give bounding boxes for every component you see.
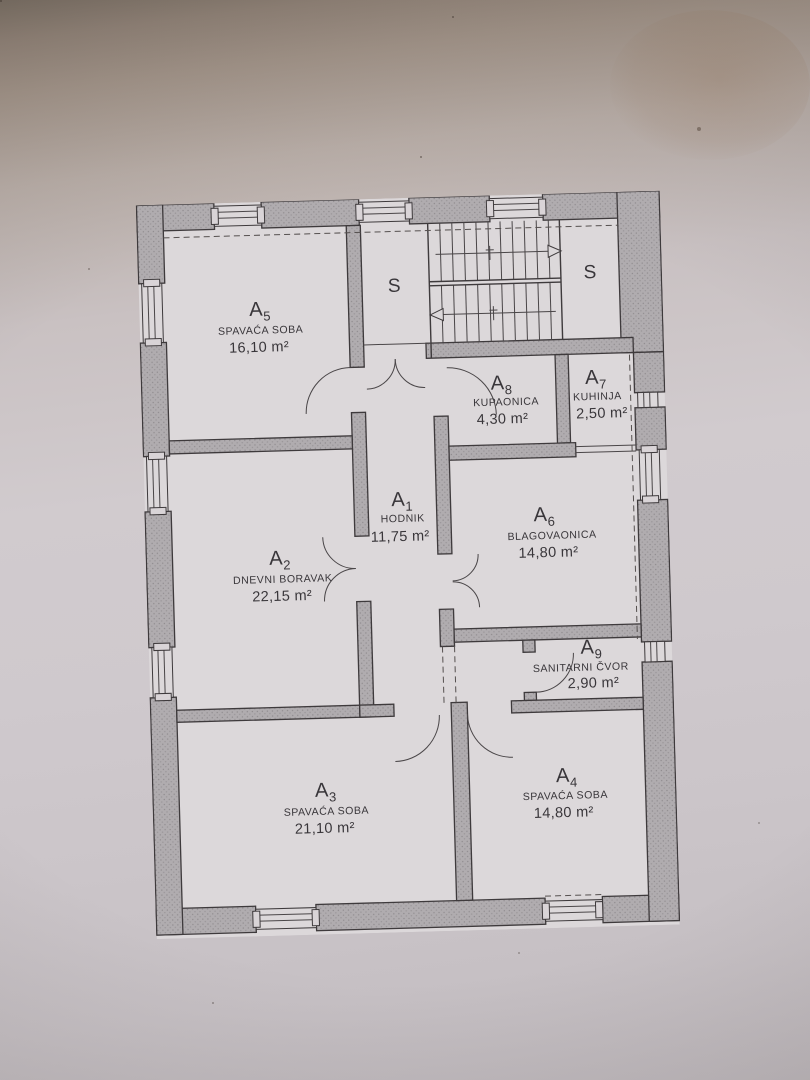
window — [356, 201, 413, 223]
svg-text:22,15 m²: 22,15 m² — [252, 588, 312, 606]
svg-text:11,75 m²: 11,75 m² — [371, 528, 430, 546]
window — [152, 643, 174, 701]
svg-text:SANITARNI ČVOR: SANITARNI ČVOR — [533, 659, 629, 675]
svg-text:SPAVAĆA SOBA: SPAVAĆA SOBA — [218, 323, 304, 338]
svg-text:14,80 m²: 14,80 m² — [518, 544, 578, 562]
paper-stain — [610, 10, 810, 160]
svg-text:KUPAONICA: KUPAONICA — [473, 395, 540, 409]
svg-text:SPAVAĆA SOBA: SPAVAĆA SOBA — [284, 804, 370, 819]
svg-text:2,90 m²: 2,90 m² — [567, 675, 619, 692]
svg-text:21,10 m²: 21,10 m² — [295, 820, 355, 838]
window — [486, 197, 546, 219]
window — [253, 907, 320, 929]
window — [639, 445, 661, 503]
window — [142, 279, 164, 346]
paper-specks — [0, 0, 2, 2]
window — [638, 392, 659, 408]
svg-text:2,50 m²: 2,50 m² — [576, 405, 628, 422]
svg-text:SPAVAĆA SOBA: SPAVAĆA SOBA — [523, 788, 609, 803]
closet-label-right: S — [583, 262, 596, 283]
window — [211, 205, 265, 227]
closet-label-left: S — [388, 276, 401, 297]
svg-text:14,80 m²: 14,80 m² — [534, 804, 594, 822]
svg-text:4,30 m²: 4,30 m² — [477, 411, 529, 428]
svg-text:KUHINJA: KUHINJA — [573, 390, 622, 403]
window — [542, 900, 603, 922]
svg-text:HODNIK: HODNIK — [381, 512, 425, 525]
plan-paper — [136, 191, 679, 939]
floor-plan-drawing: A5 SPAVAĆA SOBA 16,10 m² S S A8 KUPAONIC… — [136, 191, 680, 939]
window — [146, 452, 168, 515]
svg-text:BLAGOVAONICA: BLAGOVAONICA — [507, 529, 597, 543]
window — [645, 641, 666, 662]
floor-plan: A5 SPAVAĆA SOBA 16,10 m² S S A8 KUPAONIC… — [136, 191, 680, 939]
photo-background: A5 SPAVAĆA SOBA 16,10 m² S S A8 KUPAONIC… — [0, 0, 810, 1080]
svg-text:16,10 m²: 16,10 m² — [229, 339, 289, 357]
